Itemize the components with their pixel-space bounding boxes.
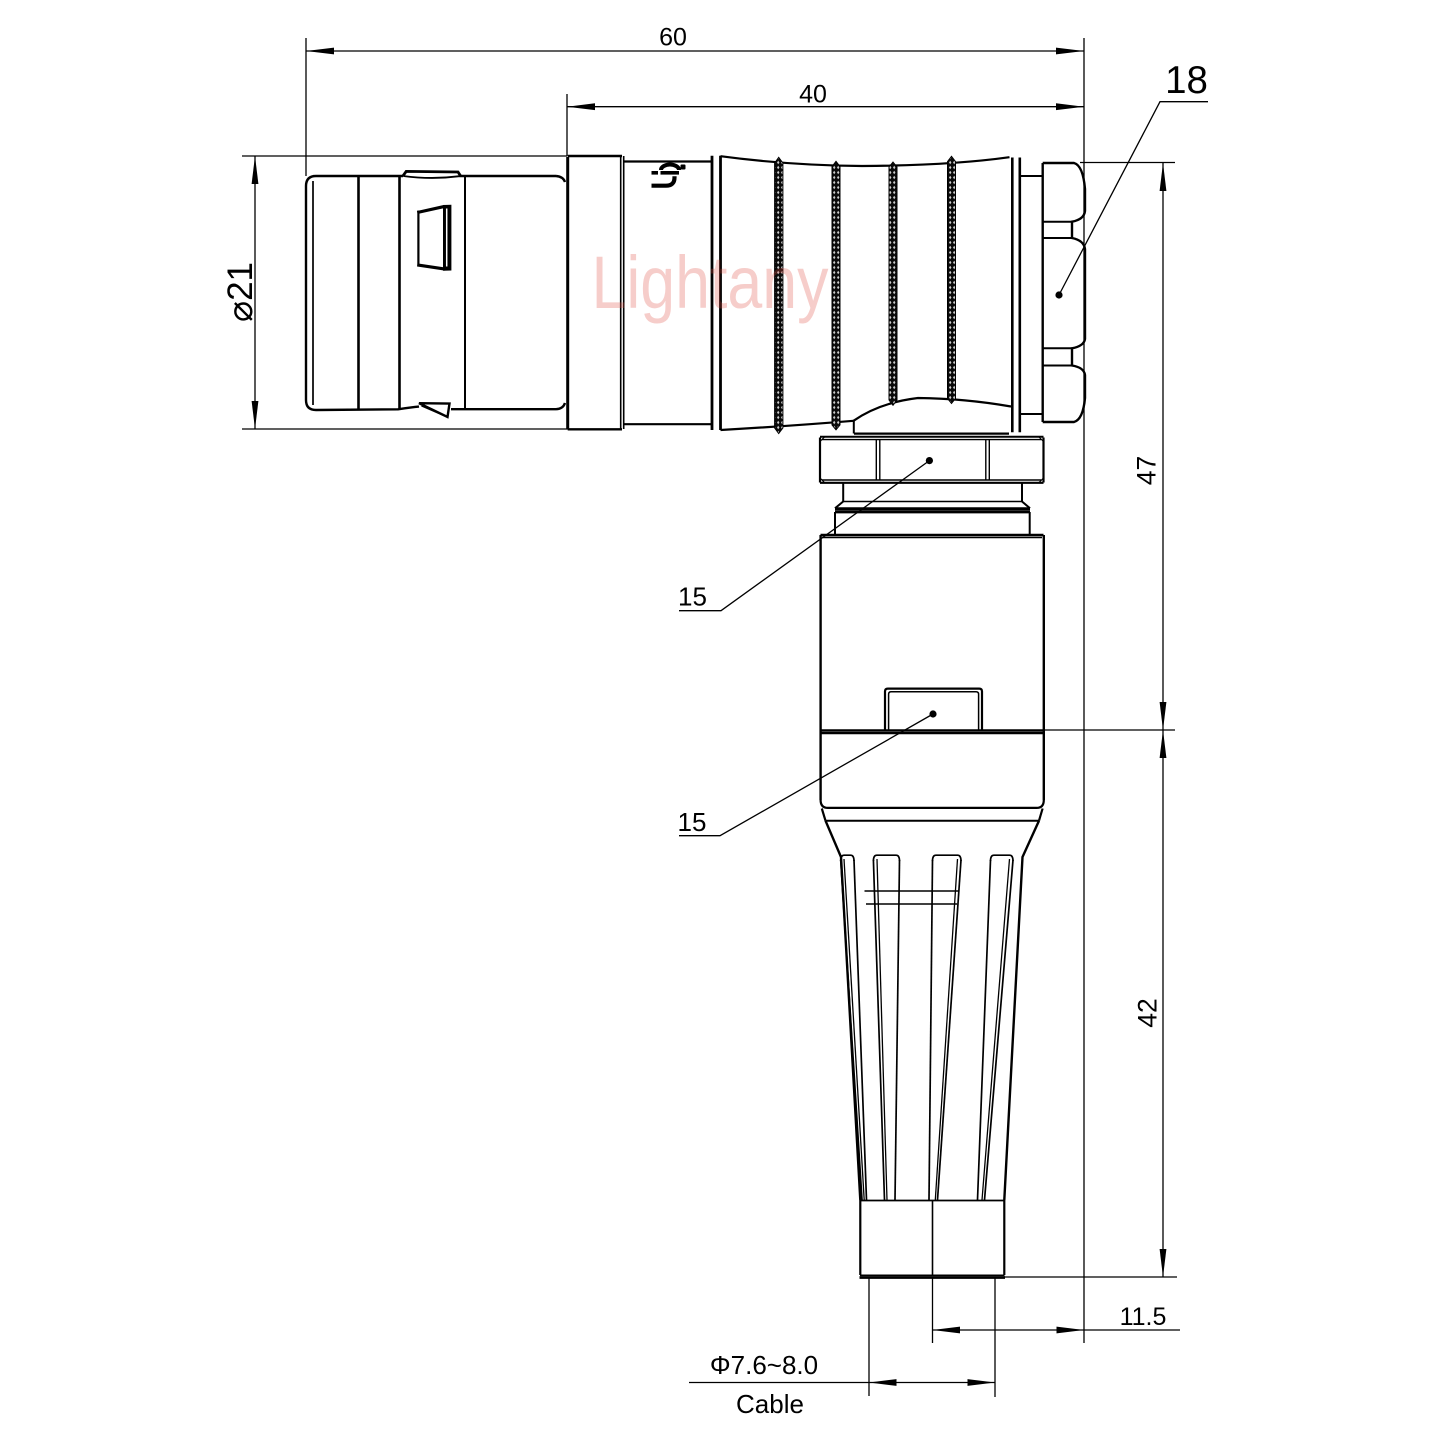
svg-text:42: 42	[1133, 998, 1163, 1027]
svg-text:60: 60	[659, 24, 687, 52]
svg-text:⌀21: ⌀21	[221, 262, 260, 322]
svg-text:11.5: 11.5	[1120, 1303, 1167, 1331]
svg-text:18: 18	[1165, 59, 1208, 102]
svg-text:15: 15	[678, 807, 707, 837]
svg-text:15: 15	[678, 582, 707, 612]
svg-text:Lightany: Lightany	[592, 241, 829, 324]
svg-text:40: 40	[799, 81, 827, 109]
svg-text:Cable: Cable	[736, 1389, 804, 1419]
svg-text:47: 47	[1132, 456, 1162, 485]
svg-text:Φ7.6~8.0: Φ7.6~8.0	[710, 1350, 818, 1380]
